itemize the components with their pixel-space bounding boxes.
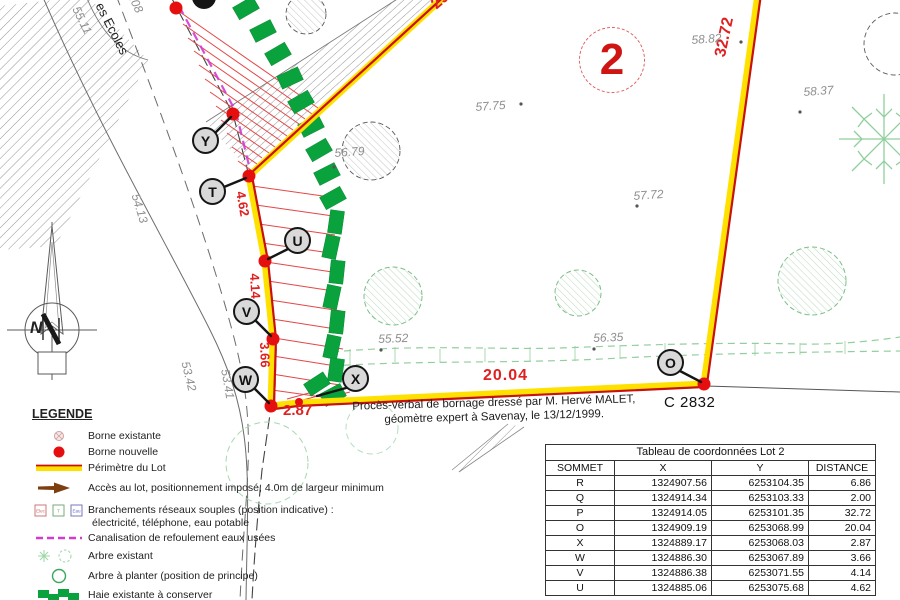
legend-label: Périmètre du Lot — [88, 462, 166, 474]
legend-title: LEGENDE — [32, 407, 92, 421]
canalisation-icon — [34, 531, 84, 545]
legend-label: Canalisation de refoulement eaux usées — [88, 532, 275, 544]
cell-y: 6253103.33 — [712, 491, 809, 506]
site-plan: Y T U V W X O 2 29.0 32.72 20.04 2.87 3.… — [0, 0, 900, 600]
table-row: W 1324886.30 6253067.89 3.66 — [546, 551, 876, 566]
cell-sommet: W — [546, 551, 615, 566]
cell-distance: 20.04 — [809, 521, 876, 536]
branchements-icon: Elec T Eau — [34, 503, 84, 517]
vertex-label-V: V — [233, 298, 260, 325]
elevation-label: 57.72 — [633, 187, 664, 203]
elevation-label: 57.75 — [475, 98, 506, 114]
cell-x: 1324889.17 — [615, 536, 712, 551]
cell-sommet: V — [546, 566, 615, 581]
cell-x: 1324914.05 — [615, 506, 712, 521]
vertex-label-Y: Y — [192, 127, 219, 154]
cell-distance: 32.72 — [809, 506, 876, 521]
conifer-icon — [839, 94, 900, 184]
legend-label: Haie existante à conserver — [88, 589, 212, 600]
cell-sommet: Q — [546, 491, 615, 506]
borne-dot — [698, 378, 711, 391]
branchement-eau-label: Eau — [72, 508, 81, 513]
legend-item-canalisation: Canalisation de refoulement eaux usées — [30, 530, 275, 545]
cell-y: 6253101.35 — [712, 506, 809, 521]
cell-distance: 2.00 — [809, 491, 876, 506]
cell-x: 1324909.19 — [615, 521, 712, 536]
cell-y: 6253067.89 — [712, 551, 809, 566]
vertex-label-O: O — [657, 349, 684, 376]
elevation-label: 58.82 — [691, 31, 722, 47]
branchement-tel-label: T — [57, 508, 60, 513]
cell-y: 6253068.03 — [712, 536, 809, 551]
lot-number-badge: 2 — [579, 27, 645, 93]
table-row: V 1324886.38 6253071.55 4.14 — [546, 566, 876, 581]
cell-x: 1324885.06 — [615, 581, 712, 596]
cell-sommet: P — [546, 506, 615, 521]
legend-label: Borne existante — [88, 430, 161, 442]
tree-icon — [864, 13, 900, 75]
table-row: X 1324889.17 6253068.03 2.87 — [546, 536, 876, 551]
borne-nouvelle-icon — [34, 445, 84, 459]
tree-icon — [778, 247, 846, 315]
cell-y: 6253075.68 — [712, 581, 809, 596]
legend-item-branchements: Elec T Eau Branchements réseaux souples … — [30, 502, 334, 517]
elevation-label: 56.35 — [593, 330, 624, 345]
table-row: P 1324914.05 6253101.35 32.72 — [546, 506, 876, 521]
col-header-x: X — [615, 461, 712, 476]
legend-item-borne-existante: Borne existante — [30, 428, 161, 443]
borne-dot — [170, 2, 183, 15]
cell-sommet: O — [546, 521, 615, 536]
cell-y: 6253104.35 — [712, 476, 809, 491]
branchement-elec-label: Elec — [36, 508, 46, 513]
parcel-id-label: C 2832 — [664, 394, 715, 411]
cell-sommet: X — [546, 536, 615, 551]
cell-y: 6253068.99 — [712, 521, 809, 536]
arbre-existant-icon — [34, 548, 84, 564]
vertex-label-T: T — [199, 178, 226, 205]
legend-label: Accès au lot, positionnement imposé, 4.0… — [88, 482, 384, 494]
acces-arrow-icon — [34, 481, 84, 495]
borne-existante-icon — [34, 429, 84, 443]
cell-x: 1324914.34 — [615, 491, 712, 506]
col-header-sommet: SOMMET — [546, 461, 615, 476]
vertex-label-X: X — [342, 365, 369, 392]
cell-distance: 3.66 — [809, 551, 876, 566]
cell-sommet: R — [546, 476, 615, 491]
table-row: R 1324907.56 6253104.35 6.86 — [546, 476, 876, 491]
north-letter: N — [30, 318, 42, 338]
borne-dot — [259, 255, 272, 268]
table-title: Tableau de coordonnées Lot 2 — [546, 445, 876, 461]
legend-item-haie: Haie existante à conserver — [30, 587, 212, 600]
col-header-distance: DISTANCE — [809, 461, 876, 476]
legend-label: Branchements réseaux souples (position i… — [88, 504, 334, 516]
distance-label: 20.04 — [483, 367, 528, 385]
parcel-line-east — [706, 386, 900, 392]
tree-icon — [555, 270, 601, 316]
arbre-a-planter-icon — [34, 568, 84, 584]
path-wedge-hatch — [452, 424, 524, 472]
cell-y: 6253071.55 — [712, 566, 809, 581]
cell-x: 1324886.38 — [615, 566, 712, 581]
haie-icon — [34, 588, 84, 600]
table-row: U 1324885.06 6253075.68 4.62 — [546, 581, 876, 596]
legend-item-arbre-existant: Arbre existant — [30, 548, 153, 563]
road-hatch — [0, 0, 148, 250]
table-header-row: SOMMET X Y DISTANCE — [546, 461, 876, 476]
vertex-label-U: U — [284, 227, 311, 254]
legend-label: Arbre à planter (position de principe) — [88, 570, 258, 582]
distance-label: 2.87 — [283, 402, 312, 419]
distance-label: 3.66 — [257, 342, 273, 368]
cell-x: 1324907.56 — [615, 476, 712, 491]
cell-distance: 6.86 — [809, 476, 876, 491]
table-row: Q 1324914.34 6253103.33 2.00 — [546, 491, 876, 506]
cell-x: 1324886.30 — [615, 551, 712, 566]
leader-lines — [215, 117, 701, 403]
coordinates-table: Tableau de coordonnées Lot 2 SOMMET X Y … — [545, 444, 876, 596]
legend-label: Borne nouvelle — [88, 446, 158, 458]
borne-dot — [243, 170, 256, 183]
legend-item-perimetre: Périmètre du Lot — [30, 460, 166, 475]
legend-item-acces: Accès au lot, positionnement imposé, 4.0… — [30, 480, 384, 495]
distance-label: 4.14 — [247, 273, 263, 299]
tree-icon — [286, 0, 326, 34]
col-header-y: Y — [712, 461, 809, 476]
elevation-label: 58.37 — [803, 83, 834, 99]
legend-label-line2: électricité, téléphone, eau potable — [92, 517, 249, 529]
perimetre-icon — [34, 461, 84, 475]
cell-distance: 4.62 — [809, 581, 876, 596]
tree-icon — [364, 267, 422, 325]
legend-label: Arbre existant — [88, 550, 153, 562]
elevation-label: 56.79 — [334, 144, 365, 160]
cell-sommet: U — [546, 581, 615, 596]
table-row: O 1324909.19 6253068.99 20.04 — [546, 521, 876, 536]
legend-item-arbre-a-planter: Arbre à planter (position de principe) — [30, 568, 258, 583]
cell-distance: 4.14 — [809, 566, 876, 581]
cell-distance: 2.87 — [809, 536, 876, 551]
elevation-label: 55.52 — [378, 331, 409, 346]
clipped-vertex-label — [192, 0, 216, 9]
vertex-label-W: W — [232, 366, 259, 393]
legend-item-borne-nouvelle: Borne nouvelle — [30, 444, 158, 459]
